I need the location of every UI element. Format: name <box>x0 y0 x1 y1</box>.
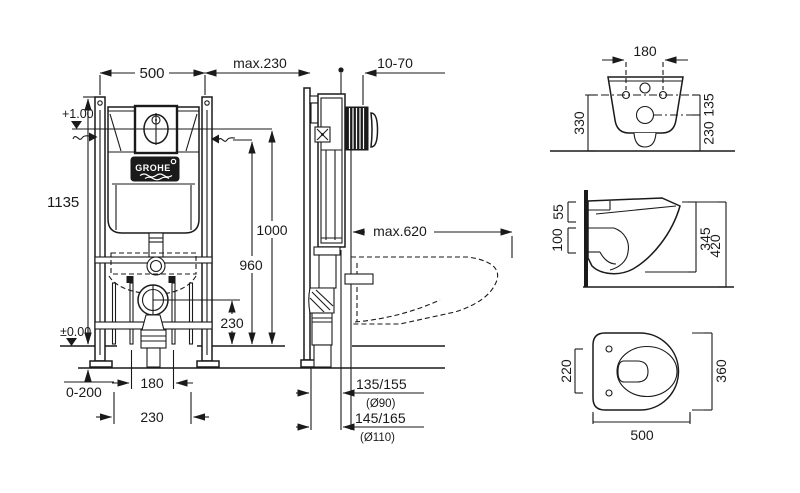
dim-pan-total-height: 420 <box>707 234 723 258</box>
technical-drawing-page: GROHE <box>0 0 800 493</box>
dim-plan-hole-spacing-group: 220 <box>558 349 583 393</box>
pan-side-outline <box>588 198 680 274</box>
flush-plate-profile <box>371 113 378 147</box>
floor-lines <box>60 346 445 368</box>
dim-plan-depth-group: 500 <box>593 412 690 443</box>
pan-plan-view: 220 360 500 <box>558 333 729 443</box>
dim-inlet-offset-group: 135 230 <box>692 93 717 151</box>
installation-drawing: GROHE <box>0 0 800 493</box>
dim-outlet-offset-90: 135/155 <box>356 376 407 392</box>
pan-side-view: 55 100 345 420 <box>549 190 734 287</box>
dim-rim-outlet-group: 100 <box>549 228 576 253</box>
dim-plan-depth: 500 <box>630 427 654 443</box>
flush-pipe <box>147 233 165 275</box>
dim-plan-width: 360 <box>713 359 729 383</box>
side-drain-pipes <box>309 247 340 367</box>
dim-supply-height: 960 <box>239 257 263 273</box>
side-cistern <box>315 94 345 247</box>
level-marker-top: +1.00 <box>62 107 94 129</box>
dim-plan-width-group: 360 <box>692 333 729 410</box>
dim-floor-level: ±0.00 <box>60 325 91 339</box>
dim-actuator-level: +1.00 <box>62 107 94 121</box>
dim-rim-inlet-group: 55 <box>550 202 576 222</box>
frame-side-view: max.230 10-70 max.620 135/155 (Ø90) 145/… <box>205 55 512 444</box>
dim-actuator-height: 1000 <box>256 222 287 238</box>
water-supply-right-icon <box>211 135 235 144</box>
brand-logo-plate: GROHE <box>131 157 179 181</box>
flush-plate-sleeve <box>346 107 368 150</box>
level-marker-floor: ±0.00 <box>60 325 91 346</box>
dim-pan-depth: max.620 <box>373 223 427 239</box>
inlet-hole <box>640 83 650 93</box>
dim-install-depth-group: max.230 <box>205 55 310 73</box>
dim-outlet-dia-90: (Ø90) <box>366 398 396 410</box>
dim-pan-rim-inlet: 55 <box>550 204 566 220</box>
outlet-bend <box>138 285 168 367</box>
pan-rear-view: 180 330 135 230 <box>550 43 735 151</box>
dim-pan-mount-height: 330 <box>571 111 587 135</box>
dim-supply-height-group: 960 <box>234 142 269 344</box>
fixing-hole-bottom <box>606 390 612 396</box>
dim-mount-height-group: 330 <box>571 95 596 151</box>
dim-plan-hole-spacing: 220 <box>558 359 574 383</box>
dim-frame-height: 1135 <box>47 194 79 211</box>
dim-pan-inlet-offset: 135 <box>701 93 717 117</box>
fixing-hole-top <box>606 346 612 352</box>
pan-outline-dashed <box>345 257 498 324</box>
dim-pan-rim-outlet: 100 <box>549 228 565 252</box>
dim-outlet-offsets-group: 135/155 (Ø90) 145/165 (Ø110) <box>296 368 424 444</box>
outlet-hole <box>637 107 654 124</box>
dim-frame-width-group: 500 <box>100 64 205 95</box>
dim-outlet-dia-110: (Ø110) <box>360 432 395 444</box>
dim-hole-spacing-group: 180 <box>602 43 688 60</box>
dim-install-depth: max.230 <box>233 55 287 71</box>
dim-pan-outlet-height: 230 <box>701 121 717 145</box>
dim-frame-height-group: 1135 <box>47 97 95 344</box>
dim-outlet-height-group: 230 <box>215 301 249 344</box>
pan-plan-outline <box>593 333 679 410</box>
dim-outlet-height: 230 <box>220 315 244 331</box>
dim-outlet-offset-110: 145/165 <box>355 410 406 426</box>
dim-pan-hole-spacing: 180 <box>633 43 657 59</box>
dim-wall-thickness: 10-70 <box>377 55 413 71</box>
dim-foot-adjust: 0-200 <box>66 384 102 400</box>
water-supply-left-icon <box>73 133 98 142</box>
dim-pan-depth-group: max.620 <box>353 223 512 258</box>
pan-outlet-stub <box>634 133 656 147</box>
dim-wall-thickness-group: 10-70 <box>363 55 445 105</box>
dim-rod-spacing-a: 180 <box>140 375 164 391</box>
frame-front-view: GROHE <box>47 64 291 425</box>
brand-logo-text: GROHE <box>135 163 171 173</box>
dim-frame-width: 500 <box>139 65 164 82</box>
dim-actuator-height-group: 1000 <box>254 131 291 344</box>
dim-rod-spacing-b: 230 <box>140 409 164 425</box>
dim-rod-spacing-b-group: 230 <box>96 392 209 425</box>
wall-reference-dot <box>338 67 343 72</box>
